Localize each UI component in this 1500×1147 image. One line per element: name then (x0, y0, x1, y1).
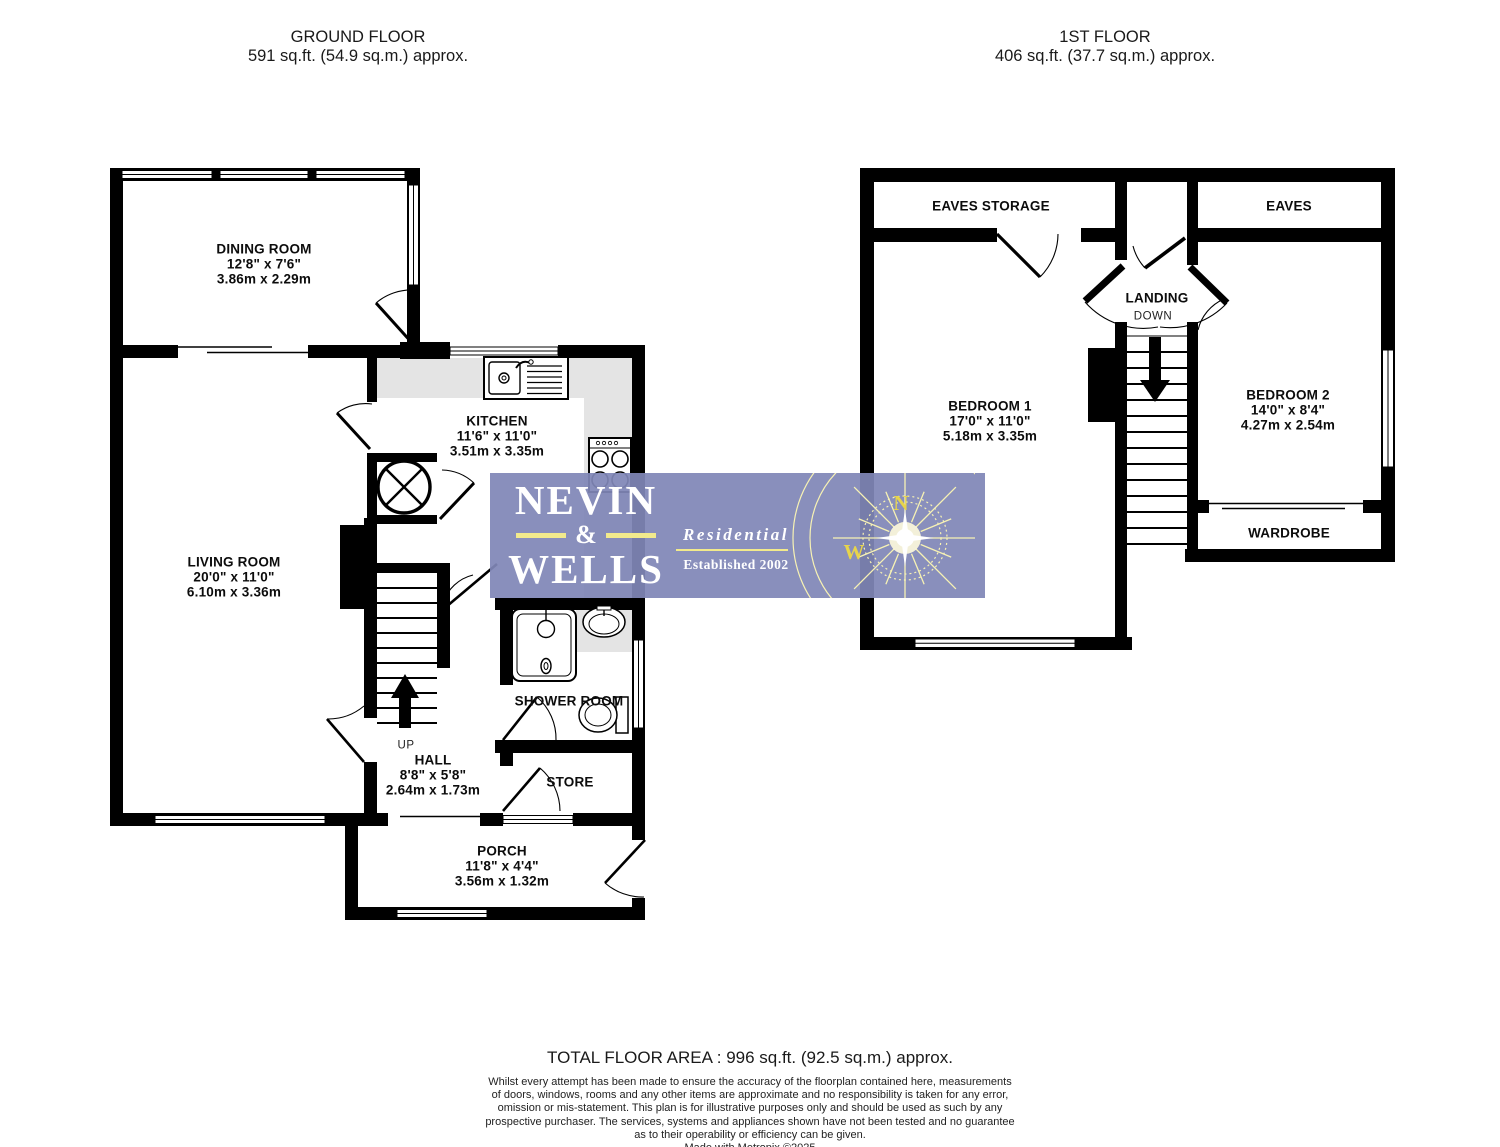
window (220, 171, 308, 179)
window (155, 816, 325, 824)
logo-established: Established 2002 (673, 557, 799, 573)
compass-icon: N W (790, 473, 975, 598)
window (409, 185, 419, 285)
logo-name-top: NEVIN (490, 479, 682, 521)
kitchen-label: KITCHEN 11'6" x 11'0" 3.51m x 3.35m (450, 414, 544, 459)
eaves-label: EAVES (1266, 199, 1312, 214)
door-arc (440, 470, 474, 519)
agency-logo: NEVIN & WELLS Residential Established 20… (490, 473, 985, 598)
shower-icon (512, 609, 576, 681)
disclaimer-line: of doors, windows, rooms and any other i… (0, 1089, 1500, 1102)
stairs-ground (377, 588, 437, 728)
down-label: DOWN (1134, 310, 1172, 325)
logo-bar-right (606, 533, 656, 538)
disclaimer-line: Whilst every attempt has been made to en… (0, 1076, 1500, 1089)
basin-icon (583, 606, 625, 637)
compass-north-label: N (893, 491, 908, 515)
washing-machine-icon (378, 461, 430, 513)
logo-bar-left (516, 533, 566, 538)
door-arc (337, 404, 372, 449)
dining-room-label: DINING ROOM 12'8" x 7'6" 3.86m x 2.29m (216, 242, 311, 287)
window (397, 910, 487, 918)
wardrobe-label: WARDROBE (1248, 526, 1330, 541)
landing-label: LANDING (1126, 291, 1189, 306)
window (450, 347, 558, 355)
bedroom-2-label: BEDROOM 2 14'0" x 8'4" 4.27m x 2.54m (1241, 388, 1335, 433)
disclaimer-line: omission or mis-statement. This plan is … (0, 1102, 1500, 1115)
hall-label: HALL 8'8" x 5'8" 2.64m x 1.73m (386, 753, 480, 798)
down-arrow-icon (1140, 337, 1170, 402)
window (1383, 350, 1394, 467)
up-label: UP (398, 739, 415, 754)
up-arrow-icon (391, 674, 419, 728)
logo-ampersand: & (575, 523, 597, 547)
sink-icon (484, 357, 568, 399)
window (122, 171, 212, 179)
floorplan-canvas: GROUND FLOOR 591 sq.ft. (54.9 sq.m.) app… (0, 0, 1500, 1147)
porch-label: PORCH 11'8" x 4'4" 3.56m x 1.32m (455, 844, 549, 889)
logo-divider (676, 549, 788, 551)
door-arc (1198, 299, 1224, 330)
window (503, 816, 573, 824)
eaves-storage-label: EAVES STORAGE (932, 199, 1050, 214)
stairs-first (1127, 336, 1187, 544)
disclaimer-line: as to their operability or efficiency ca… (0, 1129, 1500, 1142)
disclaimer: Whilst every attempt has been made to en… (0, 1076, 1500, 1147)
total-floor-area: TOTAL FLOOR AREA : 996 sq.ft. (92.5 sq.m… (0, 1048, 1500, 1068)
door-arc (997, 234, 1058, 277)
wardrobe-sliding-doors (1209, 504, 1363, 509)
store-label: STORE (546, 775, 593, 790)
window (634, 640, 644, 728)
door-arc (327, 706, 364, 762)
window (316, 171, 405, 179)
shower-room-label: SHOWER ROOM (515, 694, 624, 709)
living-room-label: LIVING ROOM 20'0" x 11'0" 6.10m x 3.36m (187, 555, 281, 600)
credit-line: Made with Metropix ©2025 (0, 1142, 1500, 1147)
logo-ampersand-row: & (490, 523, 682, 547)
logo-tagline: Residential (673, 525, 799, 545)
disclaimer-line: prospective purchaser. The services, sys… (0, 1116, 1500, 1129)
window (915, 639, 1075, 648)
compass-west-label: W (844, 540, 865, 564)
door-arc (1133, 238, 1185, 268)
bedroom-1-label: BEDROOM 1 17'0" x 11'0" 5.18m x 3.35m (943, 399, 1037, 444)
logo-name-bottom: WELLS (490, 547, 682, 591)
